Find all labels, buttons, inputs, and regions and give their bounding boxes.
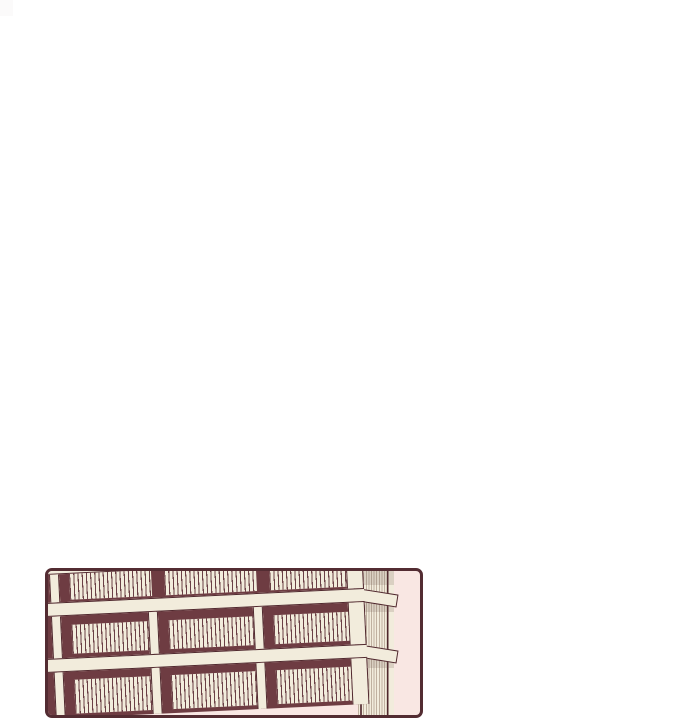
balcony-railing (164, 571, 257, 595)
column-post (350, 658, 369, 705)
column-post (148, 612, 160, 654)
balcony-railing (69, 571, 152, 600)
column-post (54, 672, 66, 715)
balcony-railing (273, 612, 349, 645)
page: { "illustration": { "type": "webtoon-com… (0, 0, 700, 681)
balcony-railing (74, 676, 153, 714)
column-post (346, 571, 364, 589)
balcony-railing (269, 571, 347, 590)
column-post (49, 574, 60, 602)
column-post (151, 668, 163, 714)
comic-panel (45, 568, 423, 718)
column-post (255, 663, 267, 709)
column-post (348, 602, 367, 645)
front-facade (48, 571, 369, 715)
balcony-railing (71, 621, 149, 654)
page-corner-artifact (0, 0, 13, 16)
balcony-railing (171, 671, 258, 709)
balcony-railing (276, 667, 353, 704)
panel-canvas (48, 571, 420, 715)
column-post (51, 616, 63, 658)
balcony-railing (168, 616, 254, 649)
column-post (253, 607, 265, 649)
